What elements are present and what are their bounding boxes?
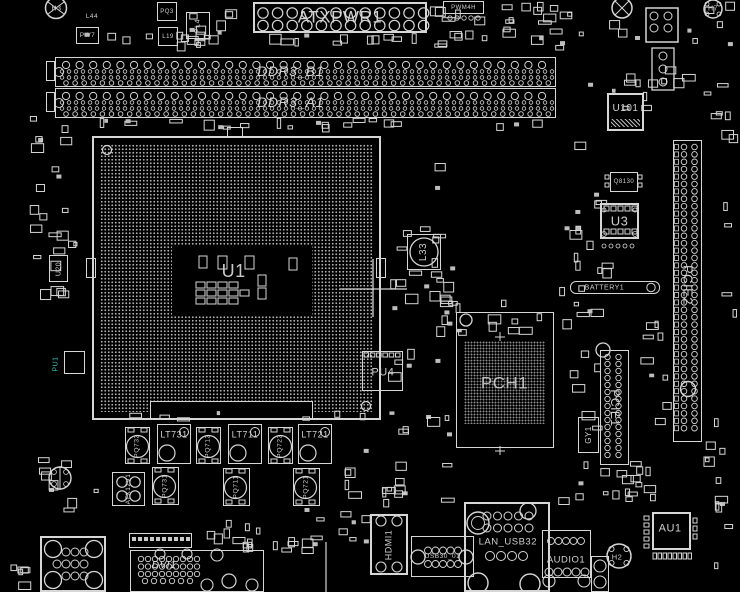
connector-atxpwr1-label: ATXPWR1 <box>298 8 382 25</box>
slot-pcie2[interactable]: PCIE2 <box>673 140 702 442</box>
chip-q8130[interactable]: Q8130 <box>610 172 638 192</box>
pin-header-bottom[interactable] <box>129 533 192 548</box>
battery-battery1[interactable]: BATTERY1 <box>570 281 660 294</box>
chip-gy1[interactable]: GY1 <box>578 417 599 453</box>
fet-pq722-label: PQ722 <box>277 434 284 458</box>
pcb-board-view: H3 H7 L44 PW7 PQ3 L19 PL4 ATXPWR1 PWM4H … <box>0 0 740 592</box>
fet-pq721[interactable]: PQ721 <box>293 468 320 506</box>
connector-audio1-label: AUDIO1 <box>547 555 585 565</box>
connector-atxpwr1[interactable]: ATXPWR1 <box>253 2 427 33</box>
dimm-slot-ddr3-a1-label: DDR3_A1 <box>257 95 324 109</box>
fet-pq722[interactable]: PQ722 <box>268 427 293 464</box>
chip-gy1-label: GY1 <box>585 426 593 444</box>
cpu-socket-u1[interactable] <box>92 136 381 420</box>
chip-u101-label: U101 <box>613 104 639 114</box>
fet-pq712-label: PQ712 <box>205 434 212 458</box>
fet-pq711-label: PQ711 <box>233 475 240 498</box>
dimm-latch-left-a1[interactable] <box>46 92 55 112</box>
regulator-pu4[interactable]: PU4 <box>362 351 403 391</box>
connector-atx12v1[interactable]: ATX12V1 <box>112 472 145 506</box>
mounting-hole-h7[interactable]: H7 <box>703 1 723 17</box>
inductor-lt721-label: LT721 <box>301 430 328 439</box>
mounting-hole-h3[interactable]: H3 <box>45 0 68 17</box>
chip-near-pu1[interactable] <box>64 351 85 374</box>
chip-au1[interactable]: AU1 <box>652 512 691 550</box>
battery-battery1-label: BATTERY1 <box>585 284 625 291</box>
chip-u20-label: U20 <box>55 261 62 275</box>
fet-pq731[interactable]: PQ731 <box>152 467 179 505</box>
fet-pq711[interactable]: PQ711 <box>223 468 250 506</box>
chip-u101[interactable]: U101 <box>607 93 644 131</box>
inductor-lt711[interactable]: LT711 <box>228 424 262 464</box>
connector-audio1[interactable]: AUDIO1 <box>542 530 591 578</box>
chipset-pch1-label: PCH1 <box>481 374 528 391</box>
inductor-lt731[interactable]: LT731 <box>157 424 191 464</box>
inductor-l33-label: L33 <box>419 243 429 261</box>
mounting-hole-h3-label: H3 <box>52 5 62 12</box>
connector-hdmi1-label: HDMI1 <box>385 529 394 560</box>
connector-dvi1-label: DVI1 <box>152 561 176 571</box>
inductor-l19-label: L19 <box>162 34 174 40</box>
fet-pq731-label: PQ731 <box>162 474 169 498</box>
fet-pq721-label: PQ721 <box>303 475 310 499</box>
chip-u20[interactable]: U20 <box>49 255 68 282</box>
connector-atx12v1-label: ATX12V1 <box>125 474 132 505</box>
fet-pq712[interactable]: PQ712 <box>196 427 221 464</box>
fet-pq3-label: PQ3 <box>160 9 174 15</box>
dimm-slot-ddr3-a1[interactable]: DDR3_A1 <box>55 88 556 118</box>
chip-pl4-label: PL4 <box>195 19 202 33</box>
slot-pcie1[interactable]: PCIE1 <box>600 350 629 465</box>
fet-pq3[interactable]: PQ3 <box>157 2 177 21</box>
chip-pl4[interactable]: PL4 <box>186 12 210 39</box>
chip-pw7[interactable]: PW7 <box>76 27 99 44</box>
connector-lan-usb32-label: LAN_USB32 <box>479 537 537 547</box>
chip-u3[interactable]: U3 <box>600 203 639 239</box>
dimm-slot-ddr3-b1[interactable]: DDR3_B1 <box>55 57 556 87</box>
mounting-hole-h2[interactable]: H2 <box>607 544 632 569</box>
chip-pwm4h-label: PWM4H <box>451 5 476 11</box>
mounting-hole-h7-label: H7 <box>708 6 718 13</box>
fet-pq732[interactable]: PQ732 <box>125 427 150 464</box>
connector-hdmi1[interactable]: HDMI1 <box>370 514 408 575</box>
chipset-pch1[interactable]: PCH1 <box>464 341 545 424</box>
chip-pu1[interactable]: PU1 <box>50 354 62 374</box>
chip-au1-label: AU1 <box>659 523 682 534</box>
chip-pu1-label: PU1 <box>53 356 60 371</box>
connector-bottom-left[interactable] <box>40 536 106 592</box>
connector-lan-usb32[interactable]: LAN_USB32 <box>464 502 550 592</box>
inductor-lt731-label: LT731 <box>160 430 187 439</box>
chip-u3-label: U3 <box>611 215 629 228</box>
inductor-l44[interactable]: L44 <box>80 5 104 29</box>
regulator-pu4-label: PU4 <box>371 367 394 378</box>
slot-pcie1-label: PCIE1 <box>609 389 621 426</box>
inductor-lt721[interactable]: LT721 <box>298 424 332 464</box>
inductor-lt711-label: LT711 <box>232 430 259 439</box>
dimm-latch-left-b1[interactable] <box>46 61 55 81</box>
chip-pwm4h[interactable]: PWM4H <box>443 1 484 14</box>
chip-q8130-label: Q8130 <box>614 179 635 185</box>
chip-pw7-label: PW7 <box>80 32 96 39</box>
connector-usb30-01[interactable]: USB30_01 <box>411 536 474 577</box>
slot-pcie2-label: PCIE2 <box>681 265 694 305</box>
connector-dvi1[interactable]: DVI1 <box>130 550 264 592</box>
inductor-l19[interactable]: L19 <box>158 27 178 46</box>
chip-u101-hatch <box>611 119 640 127</box>
connector-usb30-01-label: USB30_01 <box>425 553 460 560</box>
inductor-l33[interactable]: L33 <box>407 234 441 270</box>
mounting-hole-h2-label: H2 <box>612 553 623 561</box>
fet-pq732-label: PQ732 <box>134 434 141 458</box>
inductor-l44-label: L44 <box>86 14 98 21</box>
dimm-slot-ddr3-b1-label: DDR3_B1 <box>257 64 324 78</box>
